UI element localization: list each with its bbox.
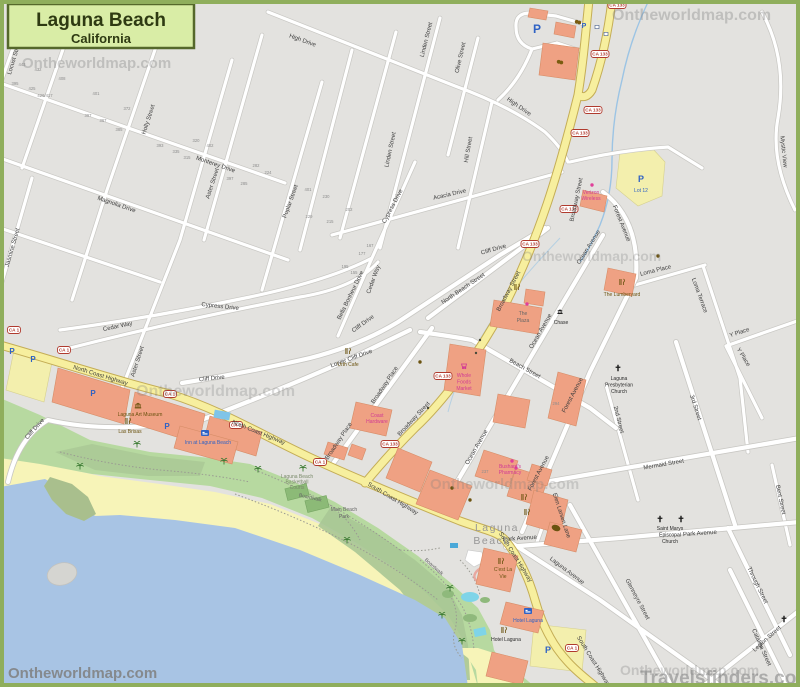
- poi-label-whole-foods: Market: [456, 386, 472, 392]
- traffic-signal-icon: [475, 352, 477, 354]
- parking-icon: P: [638, 174, 644, 184]
- poi-label-chase: Chase: [554, 320, 569, 326]
- shield-ca133: CA 133: [572, 131, 588, 136]
- poi-label-hotel-laguna: Hotel Laguna: [491, 637, 521, 643]
- poi-label-las-brisas: Las Brisas: [118, 429, 142, 435]
- poi-label-the-plaza: The: [519, 311, 528, 317]
- poi-label-presbyterian-church: Church: [611, 389, 627, 395]
- watermark: Ontheworldmap.com: [22, 55, 171, 72]
- shop-icon: [590, 183, 593, 186]
- poi-label-presbyterian-church: Presbyterian: [605, 383, 633, 389]
- cafe-icon: [418, 360, 421, 363]
- parking-icon: P: [164, 422, 170, 431]
- house-number: 372: [124, 106, 132, 111]
- parking-icon: P: [582, 23, 587, 30]
- poi-label-st-marys-church: Church: [662, 539, 678, 545]
- house-number: 294: [553, 401, 561, 406]
- shield-ca133: CA 133: [382, 442, 398, 447]
- house-number: 167: [367, 243, 375, 248]
- poi-label-st-marys-church: Saint Marys: [657, 526, 684, 532]
- house-number: 177: [359, 251, 367, 256]
- house-number: 285: [241, 181, 249, 186]
- map-subtitle: California: [71, 31, 132, 46]
- shield-ca133: CA 133: [435, 374, 451, 379]
- house-number: 401: [93, 91, 101, 96]
- poi-label-laguna-art-museum: Laguna Art Museum: [118, 412, 163, 418]
- house-number: 402: [207, 143, 215, 148]
- parking-icon: P: [9, 347, 15, 356]
- poi-label-basketball-courts: Courts: [290, 485, 305, 491]
- poi-label-the-plaza: Plaza: [517, 318, 530, 324]
- hotel-icon: [524, 608, 532, 614]
- poi-label-whole-foods: Foods: [457, 380, 471, 386]
- poi-label-verizon: Wireless: [581, 196, 601, 202]
- house-number: 229: [306, 214, 314, 219]
- poi-label-coast-hardware: Hardware: [366, 419, 388, 425]
- house-number: 395: [12, 81, 20, 86]
- house-number: 385: [116, 127, 124, 132]
- house-number: 224: [265, 170, 273, 175]
- poi-label-the-lumberyard: The Lumberyard: [604, 292, 641, 298]
- bus-stop-icon: [595, 25, 599, 28]
- shield-ca133: CA 133: [522, 242, 538, 247]
- pharmacy-icon: [510, 459, 513, 462]
- cafe-icon: [468, 498, 471, 501]
- house-number: 237: [482, 469, 490, 474]
- house-number: 367: [100, 118, 108, 123]
- watermark: Ontheworldmap.com: [522, 248, 661, 264]
- laguna-beach-map: CA 1 CA 1 CA 1 CA 1 CA 1 CA 1 CA 133 CA …: [0, 0, 800, 687]
- house-number: 230: [323, 194, 331, 199]
- title-box: Laguna Beach California: [8, 4, 194, 48]
- fountain: [450, 543, 458, 548]
- parking-icon: P: [545, 645, 551, 655]
- hotel-icon: [201, 430, 209, 436]
- house-number: 215: [327, 219, 335, 224]
- city-label-beach: Beach: [473, 535, 510, 547]
- poi-label-main-beach-park: Park: [339, 514, 350, 520]
- house-number: 202: [346, 207, 354, 212]
- watermark: Ontheworldmap.com: [430, 476, 579, 493]
- traffic-signal-icon: [479, 339, 481, 341]
- house-number: 320: [193, 138, 201, 143]
- shield-ca1: CA 1: [59, 348, 70, 353]
- house-number: 425: [29, 86, 37, 91]
- poi-label-cest-la-vie: C'est La: [494, 567, 512, 573]
- house-number: 426/417: [37, 93, 53, 98]
- shield-ca1: CA 1: [9, 328, 20, 333]
- house-number: 397: [85, 113, 93, 118]
- pool: [461, 592, 479, 602]
- parking-icon: P: [90, 389, 96, 398]
- poi-label-st-marys-church: Episcopal: [659, 533, 681, 539]
- shop-icon: [525, 302, 528, 305]
- house-number: 401: [305, 187, 313, 192]
- city-label-laguna: Laguna: [475, 522, 519, 534]
- watermark: Ontheworldmap.com: [612, 7, 771, 24]
- house-number: 282: [253, 163, 261, 168]
- watermark: Ontheworldmap.com: [136, 383, 295, 400]
- poi-label-urth-cafe: Urth Cafe: [337, 362, 359, 368]
- poi-label-hotel-laguna: Hotel Laguna: [513, 618, 543, 624]
- shield-ca1: CA 1: [315, 460, 326, 465]
- parking-icon: P: [30, 355, 36, 364]
- house-number: 393: [157, 143, 165, 148]
- house-number: 408: [59, 76, 67, 81]
- house-number: 397: [227, 176, 235, 181]
- house-number: 195: [342, 264, 350, 269]
- poi-label-main-beach-park: Main Beach: [331, 507, 358, 513]
- house-number: 315: [184, 155, 192, 160]
- poi-label-presbyterian-church: Laguna: [611, 376, 628, 382]
- house-number: 155: [351, 270, 359, 275]
- map-title: Laguna Beach: [36, 10, 166, 31]
- poi-label-whole-foods: Whole: [457, 373, 471, 379]
- poi-label-inn-at-laguna-beach: Inn at Laguna Beach: [185, 440, 231, 446]
- shield-ca133: CA 133: [592, 52, 608, 57]
- bus-stop-icon: [604, 32, 608, 35]
- watermark-bottom-left: Ontheworldmap.com: [8, 665, 157, 682]
- shield-ca1: CA 1: [567, 646, 578, 651]
- poi-label-cest-la-vie: Vie: [499, 574, 506, 580]
- lot12-label: Lot 12: [634, 188, 648, 194]
- house-number: 335: [173, 149, 181, 154]
- shield-ca133: CA 133: [585, 108, 601, 113]
- map-screenshot: CA 1 CA 1 CA 1 CA 1 CA 1 CA 1 CA 133 CA …: [0, 0, 800, 687]
- parking-icon: P: [533, 22, 541, 36]
